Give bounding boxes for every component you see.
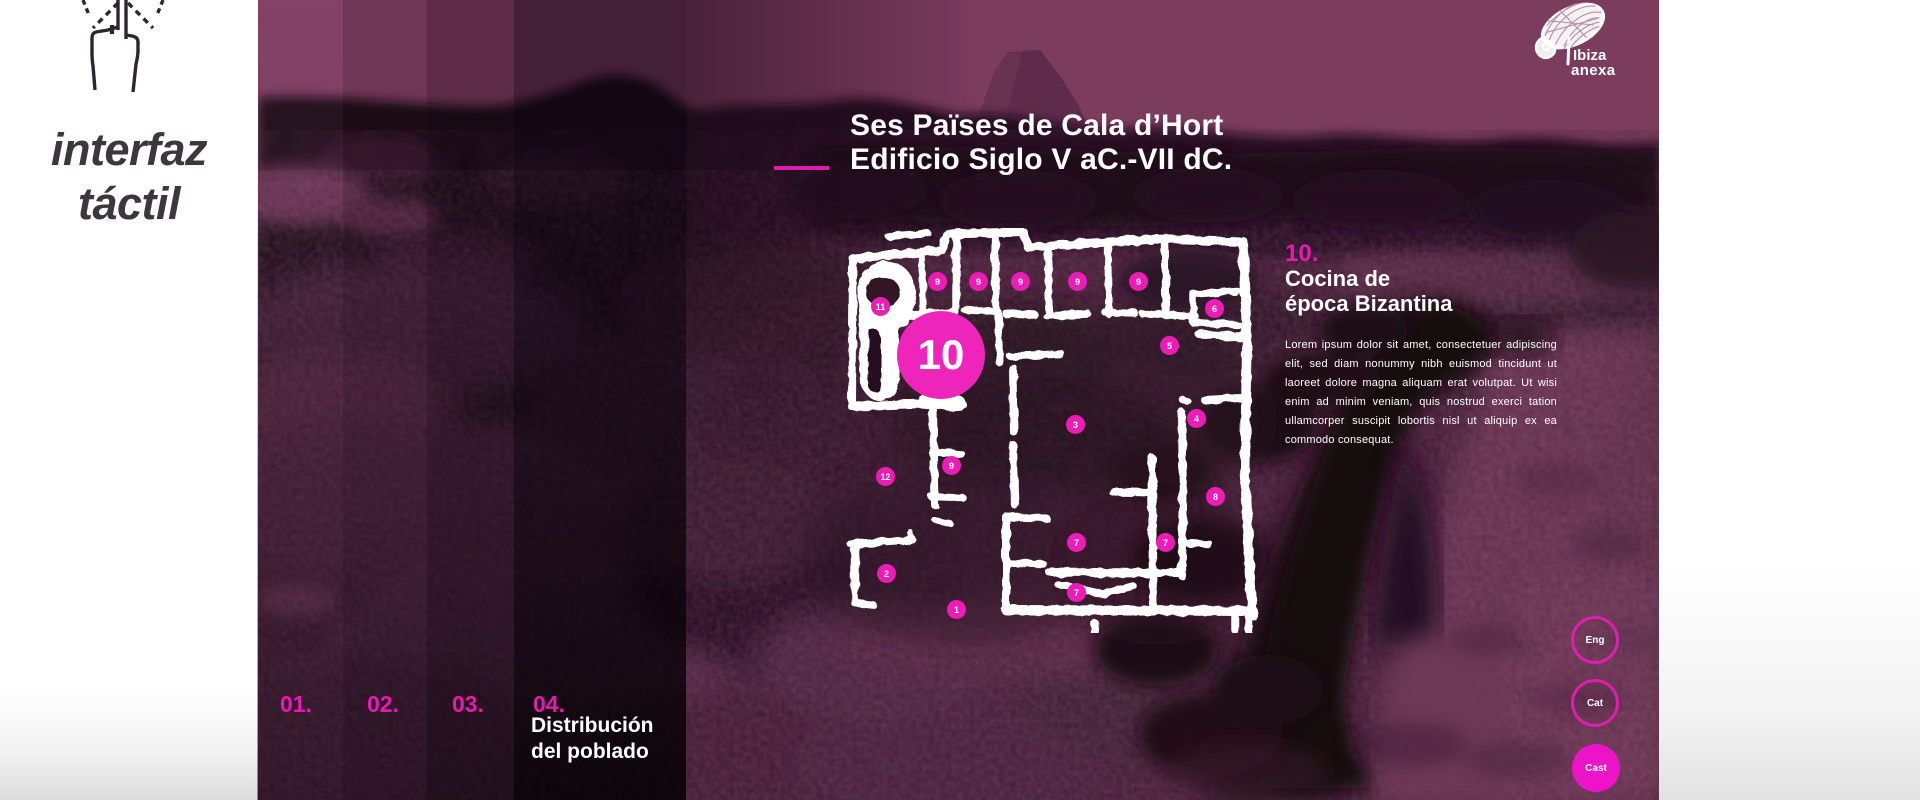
- svg-text:anexa: anexa: [1571, 62, 1616, 79]
